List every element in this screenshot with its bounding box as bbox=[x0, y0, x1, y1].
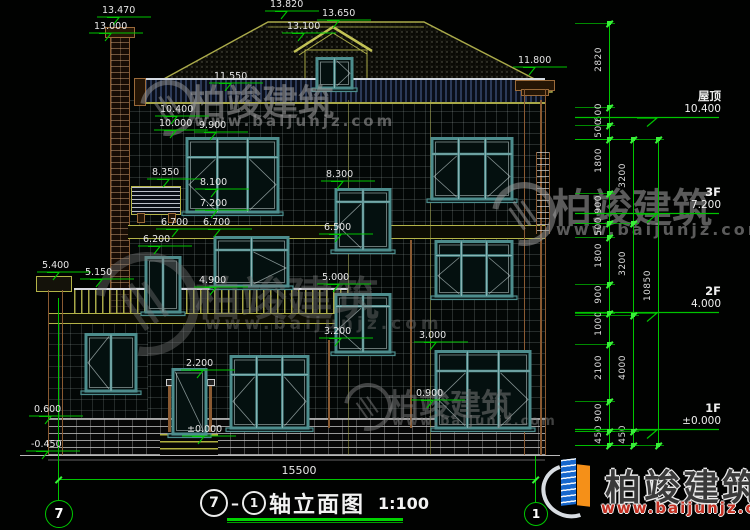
elevation-mark: 6.700 bbox=[198, 218, 254, 239]
balcony-3f-railing bbox=[131, 186, 181, 215]
brand-logo-icon bbox=[545, 456, 603, 516]
floor-name: 2F bbox=[575, 285, 721, 298]
title-axis-left-circle: 7 bbox=[200, 489, 228, 517]
elevation-mark: 8.100 bbox=[195, 178, 251, 199]
dim-node bbox=[656, 443, 660, 447]
elevation-mark: 11.550 bbox=[209, 72, 265, 93]
elevation-mark: 0.600 bbox=[29, 405, 85, 426]
title-scale: 1:100 bbox=[378, 494, 429, 513]
dim-chain-line bbox=[609, 23, 610, 445]
title-axis-right-circle: 1 bbox=[242, 491, 266, 515]
elevation-mark: 6.200 bbox=[138, 235, 194, 256]
floor-label: 1F±0.000 bbox=[575, 402, 721, 440]
dim-value: 4000 bbox=[618, 355, 628, 380]
dim-node bbox=[607, 191, 611, 195]
floor-label: 2F4.000 bbox=[575, 285, 721, 323]
elevation-mark: ±0.000 bbox=[182, 425, 238, 446]
elevation-mark: 6.500 bbox=[319, 223, 375, 244]
elevation-mark: 5.150 bbox=[80, 268, 136, 289]
dim-value: 2820 bbox=[594, 47, 604, 72]
floor-name: 屋顶 bbox=[575, 90, 721, 103]
title-underline-thin bbox=[227, 522, 403, 523]
dim-value: 1800 bbox=[594, 148, 604, 173]
elevation-mark: 13.000 bbox=[89, 22, 145, 43]
dim-node bbox=[607, 342, 611, 346]
floor-name: 1F bbox=[575, 402, 721, 415]
dim-value: 1800 bbox=[594, 243, 604, 268]
dim-node bbox=[607, 429, 611, 433]
floor-elevation: 7.200 bbox=[575, 199, 721, 211]
elevation-mark: 4.900 bbox=[194, 276, 250, 297]
elevation-mark: 8.300 bbox=[321, 170, 377, 191]
dim-value: 2100 bbox=[594, 355, 604, 380]
brand-logo-site: www.baijunjz.com bbox=[601, 499, 750, 517]
dim-node bbox=[631, 443, 635, 447]
dim-value: 3200 bbox=[618, 251, 628, 276]
window-2f-right bbox=[431, 240, 517, 304]
dim-value: 3200 bbox=[618, 163, 628, 188]
dim-node bbox=[607, 282, 611, 286]
dim-node bbox=[631, 313, 635, 317]
dim-node bbox=[607, 21, 611, 25]
dim-extension-line bbox=[575, 139, 664, 140]
dim-node bbox=[631, 221, 635, 225]
watermark-site: www.baijunjz.com bbox=[392, 414, 557, 429]
elevation-mark: -0.450 bbox=[26, 440, 82, 461]
elevation-mark: 13.100 bbox=[282, 22, 338, 43]
downspout bbox=[328, 340, 330, 428]
floor-label: 3F7.200 bbox=[575, 186, 721, 224]
window-1f-left bbox=[226, 355, 313, 436]
drawing-title: 7 – 1 轴立面图 1:100 bbox=[200, 489, 429, 517]
floor-label: 屋顶10.400 bbox=[575, 90, 721, 128]
elevation-mark: 9.900 bbox=[194, 121, 250, 142]
elevation-mark: 3.200 bbox=[319, 327, 375, 348]
title-underline bbox=[227, 518, 403, 521]
elevation-mark: 0.900 bbox=[411, 389, 467, 410]
dim-node bbox=[607, 105, 611, 109]
balcony-bracket bbox=[137, 213, 145, 223]
elevation-mark: 3.000 bbox=[414, 331, 470, 352]
floor-elevation: ±0.000 bbox=[575, 415, 721, 427]
axis-bubble-7: 7 bbox=[45, 500, 73, 528]
dim-node bbox=[631, 429, 635, 433]
elevation-mark: 11.800 bbox=[513, 56, 569, 77]
overall-dimension-line bbox=[58, 479, 536, 480]
elevation-mark: 2.200 bbox=[181, 359, 237, 380]
title-dash: – bbox=[231, 494, 239, 513]
dim-node bbox=[607, 137, 611, 141]
dim-node bbox=[607, 235, 611, 239]
elevation-mark: 5.000 bbox=[317, 273, 373, 294]
floor-elevation: 4.000 bbox=[575, 298, 721, 310]
dim-node bbox=[607, 221, 611, 225]
elevation-mark: 13.820 bbox=[265, 0, 321, 21]
dim-node bbox=[607, 443, 611, 447]
dim-node bbox=[631, 137, 635, 141]
title-text: 轴立面图 bbox=[269, 487, 365, 519]
floor-name: 3F bbox=[575, 186, 721, 199]
dim-node bbox=[607, 123, 611, 127]
dim-extension-line bbox=[575, 445, 664, 446]
axis-extension-left bbox=[58, 298, 59, 500]
wing-pilaster bbox=[48, 290, 63, 455]
elevation-drawing-canvas: 柏竣建筑 www.baijunjz.com 柏竣建筑 www.baijunjz.… bbox=[0, 0, 750, 530]
dim-node bbox=[656, 137, 660, 141]
floor-elevation: 10.400 bbox=[575, 103, 721, 115]
dim-node bbox=[607, 399, 611, 403]
dim-node bbox=[607, 311, 611, 315]
overall-dimension-value: 15500 bbox=[254, 464, 344, 477]
